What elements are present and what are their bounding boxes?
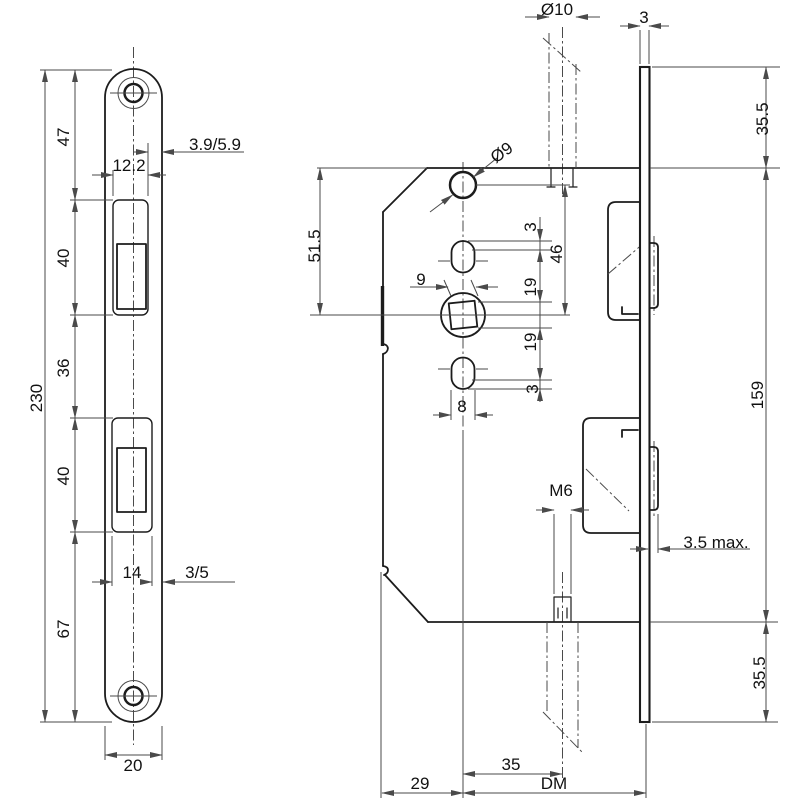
- dim-bottom-section: 67: [54, 620, 73, 639]
- dimension-labels: 230 47 40 36 40 67 20 12.2 3.9/5.9 14 3/…: [27, 0, 772, 793]
- upper-cutout: [113, 200, 148, 315]
- dim-thread-size: M6: [549, 481, 573, 500]
- dim-faceplate-lower: 35.5: [750, 656, 769, 689]
- dim-lower-cutout-width: 14: [123, 563, 142, 582]
- dim-slot-width: 8: [457, 397, 466, 416]
- dim-faceplate-middle: 159: [748, 381, 767, 409]
- dim-edge-to-axis: 51.5: [305, 229, 324, 262]
- lock-case-side-view: [383, 33, 653, 752]
- dim-upper-slot-elongation: 3: [521, 222, 540, 231]
- lower-latch-housing: [583, 418, 640, 533]
- dim-faceplate-upper: 35.5: [753, 102, 772, 135]
- dim-lower-slot-clearance: 19: [521, 333, 540, 352]
- dim-mid-section: 36: [54, 359, 73, 378]
- case-chamfer-bottom: [385, 575, 428, 622]
- dim-faceplate-thickness: 3: [639, 8, 648, 27]
- dim-hole-to-axis: 46: [547, 245, 566, 264]
- dimension-lines: [40, 17, 780, 798]
- dim-top-section: 47: [54, 128, 73, 147]
- dim-upper-cutout-height: 40: [54, 249, 73, 268]
- upper-latch-face: [117, 244, 146, 309]
- dim-lower-cutout-height: 40: [54, 467, 73, 486]
- dim-axis-to-screw: 35: [502, 755, 521, 774]
- dim-case-back-to-axis: 29: [411, 774, 430, 793]
- faceplate-edge-view: [640, 67, 658, 722]
- upper-latch-housing: [608, 202, 640, 320]
- dim-total-height: 230: [27, 384, 46, 412]
- lower-latch-face: [117, 448, 146, 512]
- dim-bolt-protrusion: 3.5 max.: [683, 533, 748, 552]
- case-chamfer-top: [383, 168, 427, 212]
- faceplate-edge: [640, 67, 650, 722]
- dim-follower-square: 9: [416, 270, 425, 289]
- dim-backset: DM: [541, 774, 567, 793]
- drawing-canvas: 230 47 40 36 40 67 20 12.2 3.9/5.9 14 3/…: [0, 0, 800, 800]
- dim-lower-slot-elongation: 3: [523, 384, 542, 393]
- dim-spindle-diameter: Ø10: [541, 0, 573, 19]
- dim-plate-width: 20: [124, 756, 143, 775]
- dim-lower-edge-offset: 3/5: [185, 563, 209, 582]
- dim-upper-slot-clearance: 19: [521, 278, 540, 297]
- technical-drawing: 230 47 40 36 40 67 20 12.2 3.9/5.9 14 3/…: [0, 0, 800, 800]
- dim-upper-cutout-width: 12.2: [112, 156, 145, 175]
- dim-upper-edge-offset: 3.9/5.9: [189, 135, 241, 154]
